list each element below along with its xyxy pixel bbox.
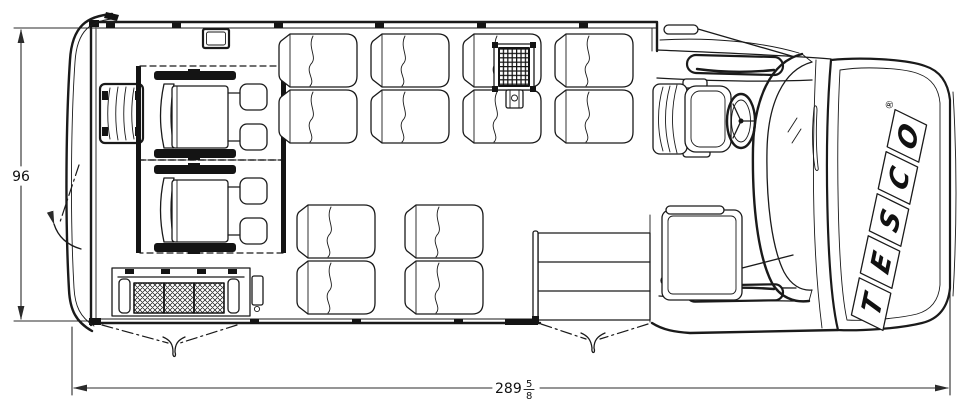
length-dimension-whole: 289 bbox=[495, 381, 522, 397]
rear-door-open bbox=[54, 12, 119, 331]
seat-row-bottom bbox=[297, 205, 483, 314]
width-dimension-value: 96 bbox=[12, 169, 30, 185]
double-seat bbox=[405, 205, 483, 314]
wheelchair-securement-area bbox=[136, 66, 286, 254]
roof-vent bbox=[203, 29, 229, 48]
windshield bbox=[753, 54, 818, 301]
hood: T E S C O ® bbox=[827, 59, 956, 331]
floorplan-svg: 96 289 5 8 bbox=[0, 0, 975, 416]
seat-row-top bbox=[279, 34, 633, 143]
double-seat bbox=[555, 34, 633, 143]
entry-door-swing bbox=[541, 324, 648, 353]
length-dimension-numerator: 5 bbox=[526, 379, 532, 390]
double-seat bbox=[279, 34, 357, 143]
double-seat bbox=[297, 205, 375, 314]
hvac-unit bbox=[112, 268, 263, 316]
double-seat bbox=[371, 34, 449, 143]
engine-console bbox=[662, 206, 742, 300]
driver-seat bbox=[653, 79, 731, 157]
entry-step-well bbox=[532, 215, 650, 324]
rear-door-swing bbox=[102, 325, 237, 357]
bus-floorplan-drawing: 96 289 5 8 bbox=[0, 0, 975, 416]
length-dimension-denominator: 8 bbox=[526, 391, 532, 402]
front-fender-top bbox=[657, 50, 831, 81]
wheelchair-2 bbox=[154, 163, 267, 254]
cab-area: T E S C O ® bbox=[652, 22, 956, 333]
width-dimension: 96 bbox=[12, 28, 100, 321]
wheelchair-1 bbox=[154, 69, 267, 160]
steering-wheel bbox=[727, 94, 755, 148]
